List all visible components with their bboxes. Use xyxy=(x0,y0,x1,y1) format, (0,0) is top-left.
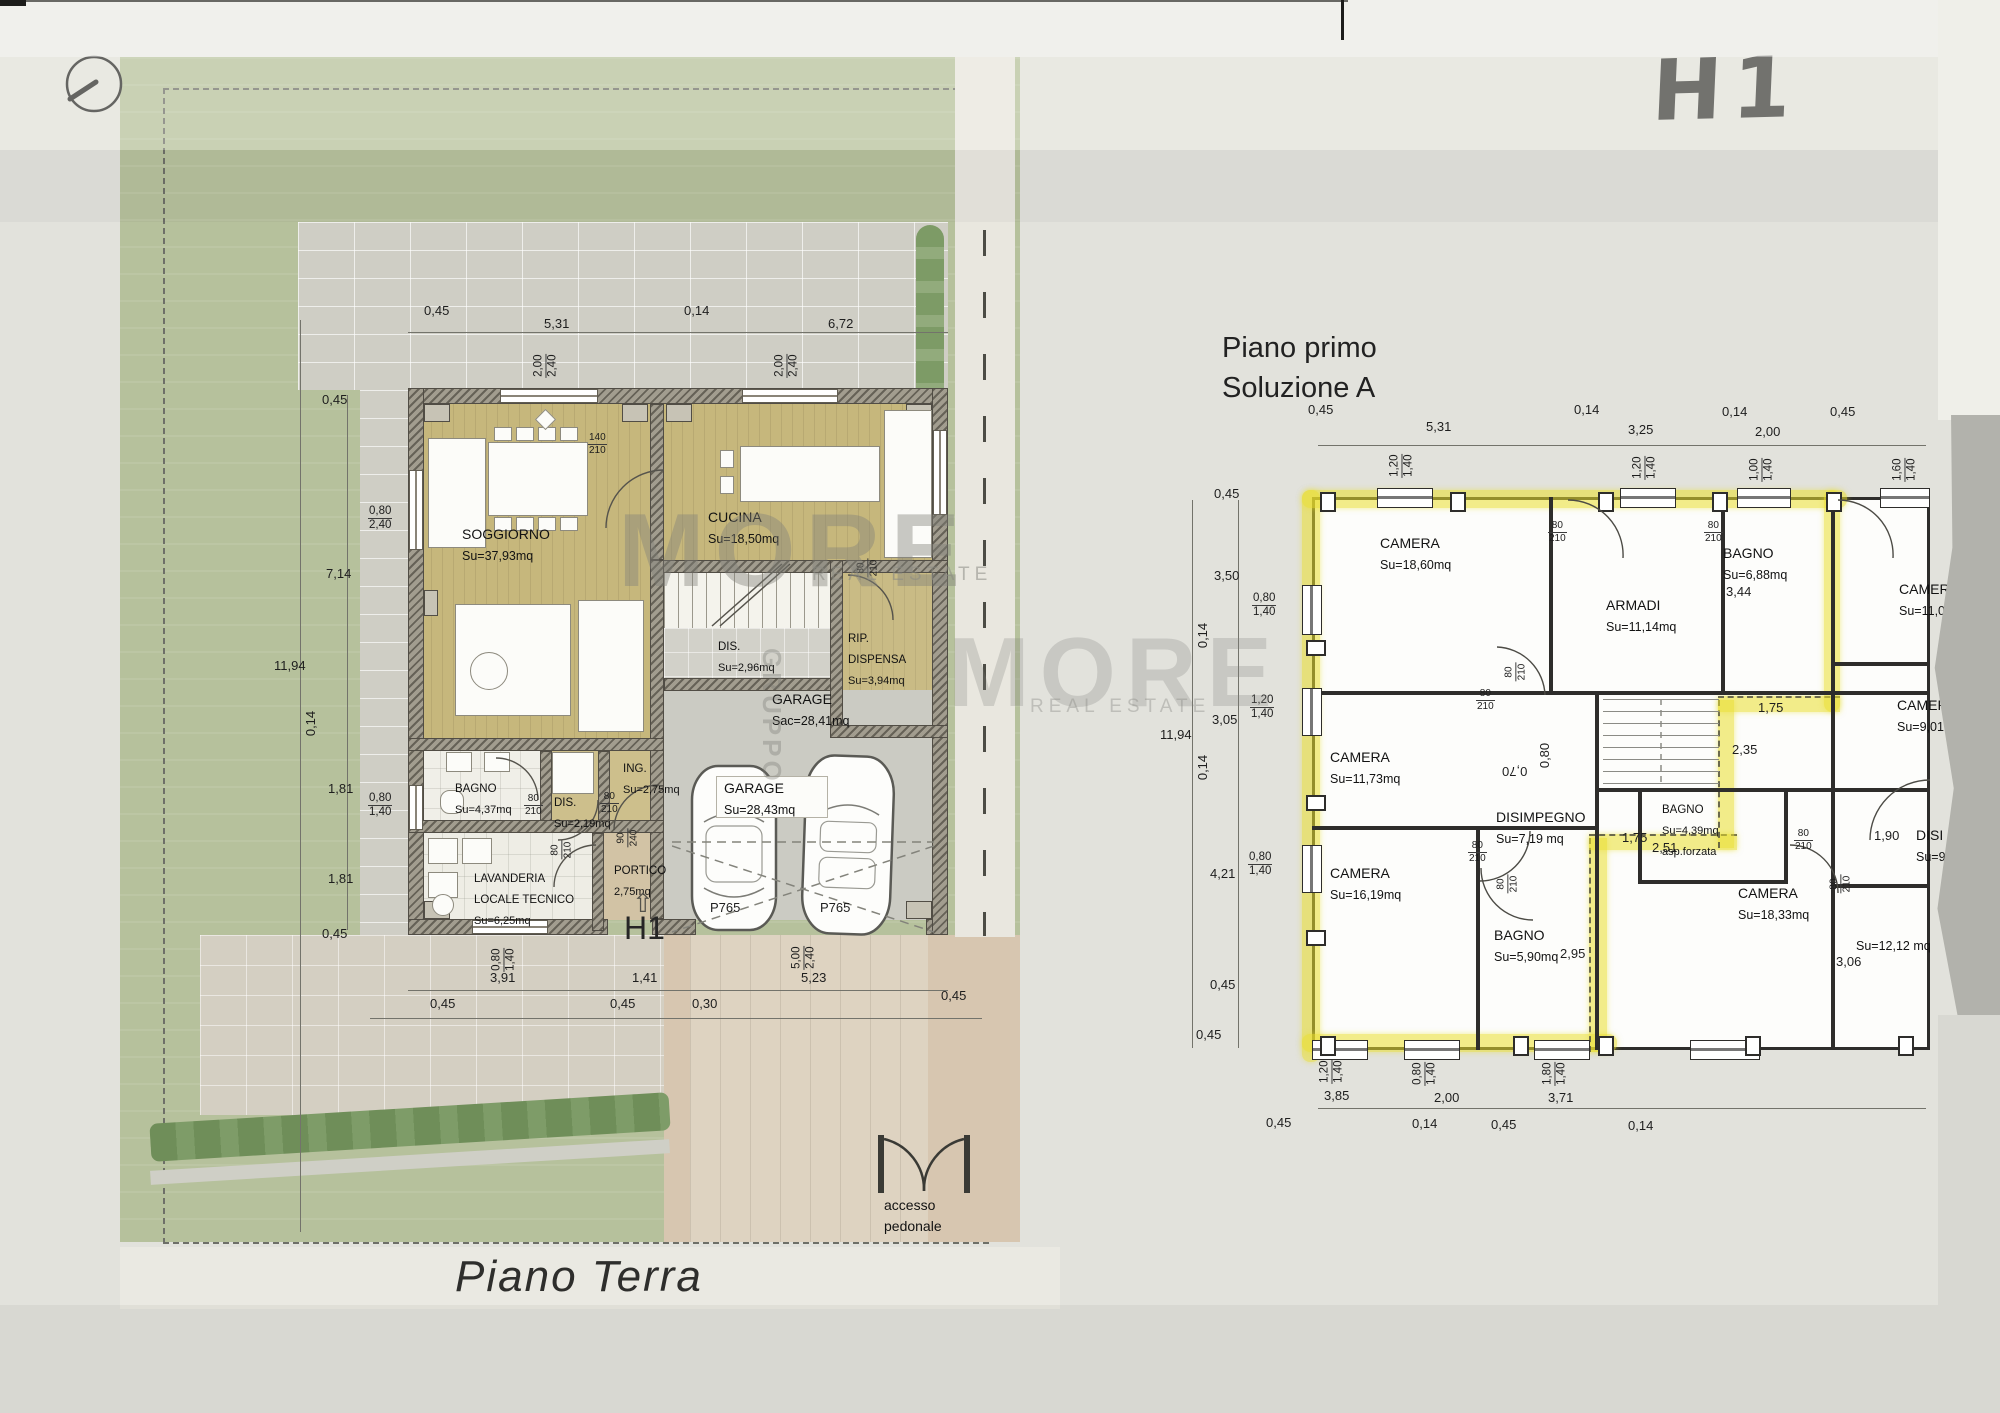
dim-label: 0,80 xyxy=(1537,743,1552,768)
page-edge-white xyxy=(1938,0,2000,420)
door-size-marker: 80210 xyxy=(600,791,619,815)
dim-label: 1,75 xyxy=(1758,700,1783,715)
window-size-marker: 0,801,40 xyxy=(1248,851,1272,878)
window-size-marker: 2,002,40 xyxy=(773,354,800,378)
dim-label: 0,45 xyxy=(1196,1027,1221,1042)
dim-label: 0,14 xyxy=(1412,1116,1437,1131)
dim-line xyxy=(347,395,348,930)
window-size-marker: 0,801,40 xyxy=(490,948,517,972)
room-label-bagno2: BAGNO Su=5,90mq xyxy=(1494,926,1558,968)
dim-label: 0,45 xyxy=(1214,486,1239,501)
dim-label: 2,95 xyxy=(1560,946,1585,961)
window-size-marker: 1,601,40 xyxy=(1891,458,1918,482)
dim-label: 11,94 xyxy=(1160,727,1192,742)
room-name: DIS. xyxy=(718,641,740,653)
dim-label: 11,94 xyxy=(274,658,306,673)
dim-label: 0,70 xyxy=(1502,764,1527,779)
scan-mark xyxy=(0,0,26,6)
dim-label: 2,35 xyxy=(1732,742,1757,757)
parking-label: P765 xyxy=(710,900,740,915)
dim-label: 0,45 xyxy=(322,926,347,941)
window-size-marker: 1,201,40 xyxy=(1631,456,1658,480)
access-label: accesso pedonale xyxy=(884,1196,942,1238)
room-label-camera6: CAMER Su=9,01 xyxy=(1897,696,1948,738)
dim-label: 2,00 xyxy=(1755,424,1780,439)
scan-band xyxy=(0,1305,2000,1413)
dim-line xyxy=(1192,500,1193,1048)
room-name: DIS. xyxy=(554,797,576,809)
dim-label: 2,51 xyxy=(1652,840,1677,855)
window-size-marker: 2,002,40 xyxy=(532,354,559,378)
paved-terrace-bottom xyxy=(200,935,664,1115)
dim-label: 3,44 xyxy=(1726,584,1751,599)
dim-label: 0,14 xyxy=(1574,402,1599,417)
door-size-marker: 80210 xyxy=(1503,663,1527,682)
dim-label: 3,50 xyxy=(1214,568,1239,583)
dim-label: 1,41 xyxy=(632,970,657,985)
room-area: Su=37,93mq xyxy=(462,549,533,563)
window-size-marker: 1,201,40 xyxy=(1318,1060,1345,1084)
window-size-marker: 1,201,40 xyxy=(1388,454,1415,478)
access-line: pedonale xyxy=(884,1218,942,1234)
dim-label: 0,45 xyxy=(424,303,449,318)
dim-label: 0,14 xyxy=(303,711,318,736)
dim-label: 0,45 xyxy=(1266,1115,1291,1130)
dim-label: 6,72 xyxy=(828,316,853,331)
dim-label: 4,21 xyxy=(1210,866,1235,881)
door-size-marker: 80210 xyxy=(524,793,543,817)
room-label-disimpegno: DISIMPEGNO Su=7,19 mq xyxy=(1496,808,1585,850)
room-label-camera5: CAMER Su=11,0 xyxy=(1899,580,1950,622)
door-size-marker: 90240 xyxy=(615,829,639,848)
room-label-soggiorno: SOGGIORNO Su=37,93mq xyxy=(462,525,550,567)
watermark-vertical: GRUPPO xyxy=(756,648,787,785)
room-name: SOGGIORNO xyxy=(462,526,550,542)
room-label-camera2: CAMERA Su=11,73mq xyxy=(1330,748,1400,790)
scan-mark xyxy=(1341,0,1344,40)
room-area: Su=2,75mq xyxy=(623,784,680,796)
dim-label: 3,06 xyxy=(1836,954,1861,969)
dim-line xyxy=(1318,1108,1926,1109)
dim-label: 3,71 xyxy=(1548,1090,1573,1105)
scan-mark xyxy=(0,0,1348,2)
dim-label: 0,45 xyxy=(941,988,966,1003)
room-area: Su=3,94mq xyxy=(848,675,905,687)
plan-subtitle-first: Soluzione A xyxy=(1222,372,1375,405)
dim-label: 0,14 xyxy=(1628,1118,1653,1133)
watermark-tagline-2: REAL ESTATE xyxy=(1030,696,1210,718)
dim-label: 0,14 xyxy=(1722,404,1747,419)
door-size-marker: 80210 xyxy=(1794,828,1813,852)
dim-label: 0,30 xyxy=(692,996,717,1011)
dim-label: 1,81 xyxy=(328,781,353,796)
dim-label: 0,14 xyxy=(684,303,709,318)
plan-title-first: Piano primo xyxy=(1222,332,1377,365)
room-area: Su=4,37mq xyxy=(455,804,512,816)
access-line: accesso xyxy=(884,1197,935,1213)
garage-door-size-marker: 5,002,40 xyxy=(790,946,817,970)
north-indicator-icon xyxy=(62,52,126,116)
dim-label: 3,91 xyxy=(490,970,515,985)
parking-label: P765 xyxy=(820,900,850,915)
room-name: BAGNO xyxy=(455,783,497,795)
door-size-marker: 80210 xyxy=(549,841,573,860)
dim-label: 5,31 xyxy=(544,316,569,331)
room-label-room12: Su=12,12 mq xyxy=(1856,936,1931,957)
dim-label: 1,90 xyxy=(1874,828,1899,843)
dim-label: 1,75 xyxy=(1622,830,1647,845)
room-label-bagno1: BAGNO Su=6,88mq xyxy=(1723,544,1787,586)
window-size-marker: 1,801,40 xyxy=(1541,1062,1568,1086)
dim-label: 5,31 xyxy=(1426,419,1451,434)
dim-label: 7,14 xyxy=(326,566,351,581)
dim-label: 0,45 xyxy=(1830,404,1855,419)
room-name: PORTICO xyxy=(614,865,666,877)
window-size-marker: 1,001,40 xyxy=(1748,458,1775,482)
dim-label: 1,81 xyxy=(328,871,353,886)
dim-label: 0,45 xyxy=(1491,1117,1516,1132)
room-name: DISPENSA xyxy=(848,654,906,666)
room-label-camera1: CAMERA Su=18,60mq xyxy=(1380,534,1451,576)
dim-line xyxy=(370,1018,982,1019)
room-label-bagno: BAGNO Su=4,37mq xyxy=(455,778,512,820)
dim-line xyxy=(300,320,301,1232)
dim-label: 3,25 xyxy=(1628,422,1653,437)
room-area: Su=2,19mq xyxy=(554,818,611,830)
page-edge-lower xyxy=(1938,1015,2000,1413)
room-label-armadi: ARMADI Su=11,14mq xyxy=(1606,596,1676,638)
room-label-disimpegno2: DISI Su=9 xyxy=(1916,826,1946,868)
scanned-floorplan-sheet: SOGGIORNO Su=37,93mq CUCINA Su=18,50mq D… xyxy=(0,0,2000,1413)
dim-line xyxy=(1318,445,1926,446)
dim-label: 5,23 xyxy=(801,970,826,985)
window-size-marker: 0,802,40 xyxy=(368,505,392,532)
room-label-camera3: CAMERA Su=16,19mq xyxy=(1330,864,1401,906)
watermark-brand: MORE xyxy=(618,492,970,611)
door-size-marker: 80210 xyxy=(1468,840,1487,864)
watermark-tagline: REAL ESTATE xyxy=(812,564,992,586)
dim-label: 0,45 xyxy=(1308,402,1333,417)
room-label-dispensa: RIP. DISPENSA Su=3,94mq xyxy=(848,628,906,690)
room-label-garage-net: GARAGE Su=28,43mq xyxy=(724,779,795,821)
dim-label: 0,45 xyxy=(610,996,635,1011)
dim-label: 2,00 xyxy=(1434,1090,1459,1105)
room-name: RIP. xyxy=(848,633,869,645)
room-name: LAVANDERIA xyxy=(474,873,545,885)
door-size-marker: 80210 xyxy=(1828,875,1852,894)
window-size-marker: 0,801,40 xyxy=(368,792,392,819)
handwritten-unit-code: H1 xyxy=(1650,38,1803,140)
room-label-camera4: CAMERA Su=18,33mq xyxy=(1738,884,1809,926)
unit-code-label: H1 xyxy=(624,910,665,947)
door-size-marker: 80210 xyxy=(1704,520,1723,544)
plan-title-ground: Piano Terra xyxy=(455,1252,703,1302)
pedestrian-gate xyxy=(878,1135,970,1197)
dim-line xyxy=(408,990,948,991)
dim-label: 3,85 xyxy=(1324,1088,1349,1103)
dim-line xyxy=(408,332,948,333)
dim-label: 0,14 xyxy=(1195,755,1210,780)
window-size-marker: 0,801,40 xyxy=(1411,1062,1438,1086)
room-label-lavanderia: LAVANDERIA LOCALE TECNICO Su=6,25mq xyxy=(474,868,574,930)
door-size-marker: 80210 xyxy=(1548,520,1567,544)
room-area: Su=6,25mq xyxy=(474,915,531,927)
door-size-marker: 80210 xyxy=(1495,875,1519,894)
paved-terrace-left xyxy=(360,222,410,935)
room-name: LOCALE TECNICO xyxy=(474,894,574,906)
room-area: Su=28,43mq xyxy=(724,803,795,817)
dim-label: 0,45 xyxy=(322,392,347,407)
door-size-marker: 140210 xyxy=(588,432,607,456)
dim-label: 0,45 xyxy=(1210,977,1235,992)
dim-label: 0,45 xyxy=(430,996,455,1011)
room-name: ING. xyxy=(623,763,647,775)
door-size-marker: 80210 xyxy=(1476,688,1495,712)
room-label-ingresso: ING. Su=2,75mq xyxy=(623,758,680,800)
